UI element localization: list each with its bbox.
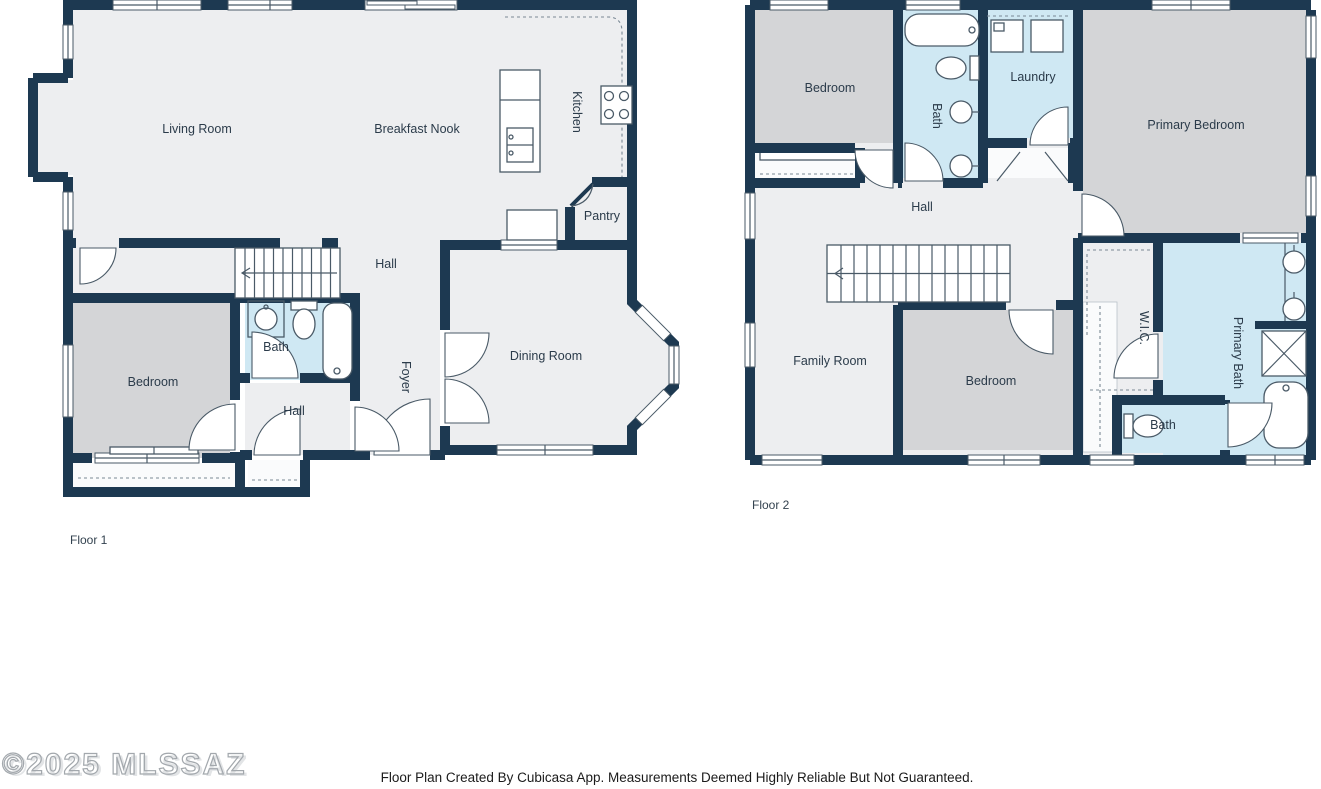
stairs-floor2 bbox=[827, 245, 1010, 302]
toilet-icon bbox=[293, 309, 315, 339]
room-label-foyer: Foyer bbox=[399, 361, 413, 393]
kitchen-island bbox=[500, 70, 540, 172]
floor1-porch bbox=[73, 463, 235, 488]
sink-icon bbox=[1283, 251, 1305, 273]
room-label-bedroom1: Bedroom bbox=[128, 375, 179, 389]
washer-icon bbox=[991, 20, 1023, 52]
toilet-tank bbox=[970, 56, 979, 80]
room-label-laundry: Laundry bbox=[1010, 70, 1056, 84]
room-label-pantry: Pantry bbox=[584, 209, 621, 223]
floor1-open-area bbox=[73, 10, 632, 243]
floor1-caption: Floor 1 bbox=[70, 533, 108, 547]
room-label-family-room: Family Room bbox=[793, 354, 867, 368]
floor1-plan: Living Room Breakfast Nook Kitchen Pantr… bbox=[33, 0, 679, 547]
stairs-floor1 bbox=[235, 248, 340, 298]
room-label-kitchen: Kitchen bbox=[570, 91, 584, 133]
bedroom1-closet-slider bbox=[110, 447, 198, 454]
sink-icon bbox=[950, 101, 972, 123]
sink-icon bbox=[1283, 298, 1305, 320]
floor1-entry-stoop bbox=[248, 460, 301, 486]
floor-plan-drawing: Living Room Breakfast Nook Kitchen Pantr… bbox=[0, 0, 1321, 789]
room-label-hall-lower: Hall bbox=[283, 404, 305, 418]
room-label-hall: Hall bbox=[375, 257, 397, 271]
stove-icon bbox=[601, 86, 632, 124]
wall bbox=[33, 0, 68, 492]
floor1-bay-bump bbox=[38, 80, 75, 175]
room-label-hall2: Hall bbox=[911, 200, 933, 214]
room-label-living-room: Living Room bbox=[162, 122, 231, 136]
room-label-dining-room: Dining Room bbox=[510, 349, 582, 363]
room-label-primary-bedroom: Primary Bedroom bbox=[1147, 118, 1244, 132]
toilet-tank bbox=[1124, 414, 1133, 438]
floor-plan-canvas: Living Room Breakfast Nook Kitchen Pantr… bbox=[0, 0, 1321, 789]
room-label-bedroom-center: Bedroom bbox=[966, 374, 1017, 388]
counter bbox=[507, 210, 557, 240]
room-label-bedroom-left: Bedroom bbox=[805, 81, 856, 95]
disclaimer-text: Floor Plan Created By Cubicasa App. Meas… bbox=[33, 770, 1321, 785]
room-label-primary-bath: Primary Bath bbox=[1231, 317, 1245, 389]
sink-icon bbox=[950, 155, 972, 177]
room-label-bath1: Bath bbox=[263, 340, 289, 354]
dryer-icon bbox=[1031, 20, 1063, 52]
room-label-small-bath: Bath bbox=[1150, 418, 1176, 432]
floor2-caption: Floor 2 bbox=[752, 498, 790, 512]
floor2-bedroom-left-area bbox=[755, 10, 893, 143]
floor2-closet-laundry bbox=[988, 148, 1068, 178]
room-label-bath2: Bath bbox=[930, 103, 944, 129]
bathtub-icon bbox=[905, 14, 979, 46]
room-label-wic: W.I.C. bbox=[1137, 311, 1151, 345]
sink-icon bbox=[255, 308, 277, 330]
toilet-icon bbox=[936, 57, 966, 79]
floor2-plan: Bedroom Bath Laundry Primary Bedroom Hal… bbox=[745, 0, 1316, 512]
room-label-breakfast-nook: Breakfast Nook bbox=[374, 122, 460, 136]
